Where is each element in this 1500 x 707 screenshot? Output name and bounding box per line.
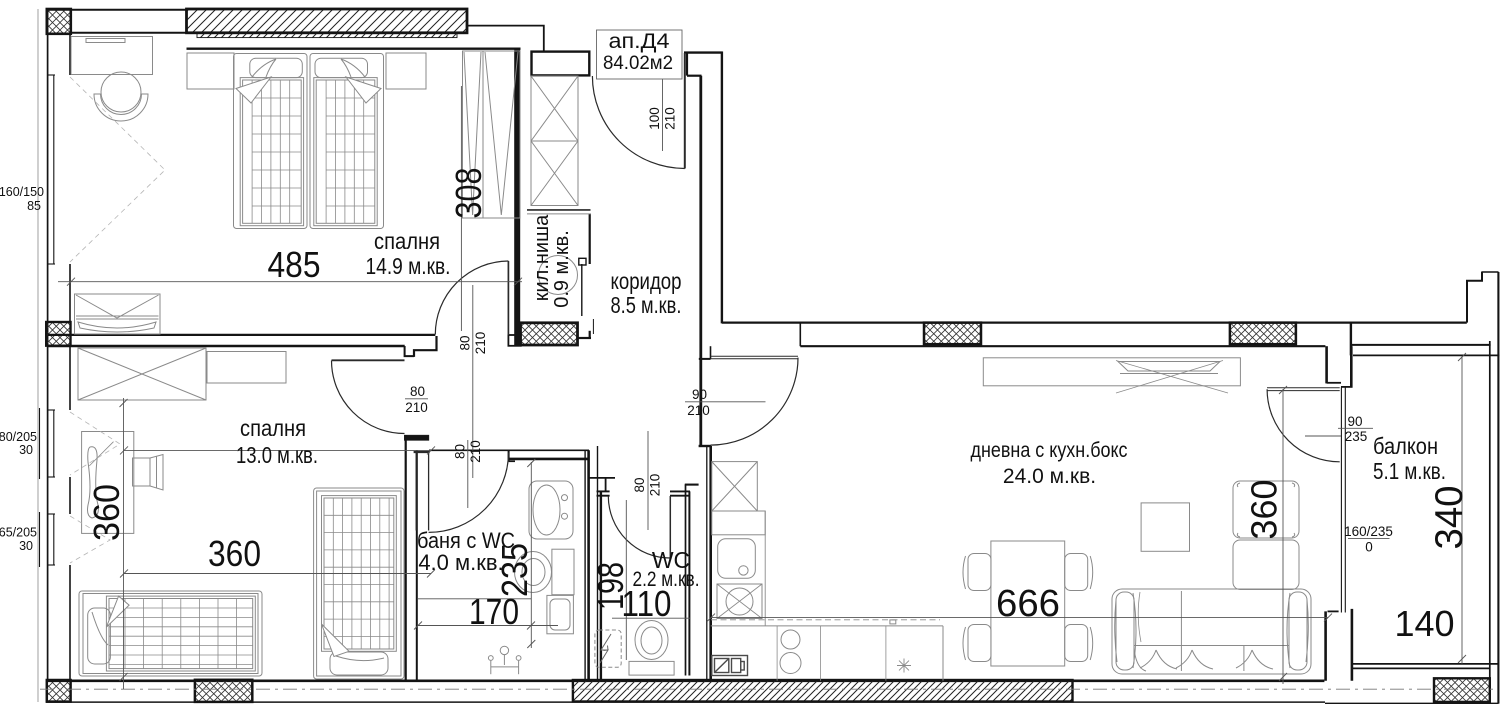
svg-text:13.0 м.кв.: 13.0 м.кв.	[236, 442, 318, 468]
svg-text:210: 210	[473, 332, 488, 355]
svg-text:ап.Д4: ап.Д4	[609, 30, 670, 53]
svg-text:65/205: 65/205	[0, 526, 37, 540]
svg-text:30: 30	[19, 443, 33, 457]
svg-text:балкон: балкон	[1373, 433, 1438, 459]
svg-text:90: 90	[692, 387, 707, 402]
svg-text:210: 210	[468, 440, 483, 463]
svg-text:спалня: спалня	[374, 228, 440, 254]
svg-text:235: 235	[1345, 429, 1368, 444]
svg-text:160/235: 160/235	[1344, 524, 1393, 539]
svg-text:24.0 м.кв.: 24.0 м.кв.	[1003, 465, 1096, 488]
svg-text:210: 210	[648, 474, 663, 497]
svg-text:14.9 м.кв.: 14.9 м.кв.	[366, 253, 451, 279]
svg-text:80: 80	[410, 384, 425, 399]
svg-text:170: 170	[469, 591, 519, 632]
svg-text:5.1 м.кв.: 5.1 м.кв.	[1373, 458, 1446, 484]
svg-text:4.0 м.кв.: 4.0 м.кв.	[418, 550, 503, 575]
svg-text:666: 666	[996, 583, 1060, 625]
svg-text:100: 100	[647, 107, 662, 130]
svg-text:90: 90	[1347, 414, 1362, 429]
svg-text:84.02м2: 84.02м2	[603, 52, 673, 74]
svg-text:спалня: спалня	[240, 415, 306, 441]
svg-text:308: 308	[448, 168, 489, 219]
svg-text:210: 210	[405, 400, 428, 415]
svg-text:160/150: 160/150	[0, 185, 44, 199]
svg-text:210: 210	[663, 107, 678, 130]
svg-text:0: 0	[1365, 540, 1373, 555]
svg-text:80: 80	[632, 477, 647, 492]
svg-text:8.5 м.кв.: 8.5 м.кв.	[611, 292, 682, 318]
svg-text:340: 340	[1428, 486, 1471, 550]
svg-text:85: 85	[27, 199, 41, 213]
svg-text:0.9 м.кв.: 0.9 м.кв.	[551, 230, 573, 308]
svg-text:140: 140	[1394, 603, 1454, 644]
svg-text:110: 110	[622, 583, 672, 624]
svg-text:360: 360	[1244, 479, 1285, 539]
svg-text:дневна с кухн.бокс: дневна с кухн.бокс	[971, 439, 1128, 462]
svg-text:30: 30	[19, 539, 33, 553]
svg-text:80: 80	[452, 444, 467, 459]
svg-text:кил.ниша: кил.ниша	[531, 214, 553, 301]
svg-text:360: 360	[208, 533, 261, 574]
svg-text:80: 80	[457, 335, 472, 350]
svg-text:80/205: 80/205	[0, 430, 37, 444]
svg-text:360: 360	[86, 484, 127, 541]
svg-text:210: 210	[687, 403, 710, 418]
svg-text:485: 485	[268, 244, 321, 285]
svg-text:коридор: коридор	[611, 268, 682, 294]
svg-text:235: 235	[494, 543, 535, 597]
